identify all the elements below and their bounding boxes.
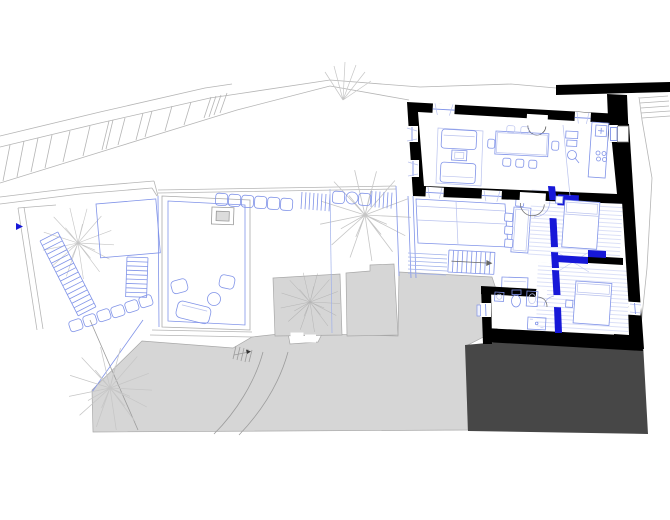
appliance-icon	[595, 125, 607, 137]
roof-structure-box	[305, 335, 316, 343]
plan-drawing	[0, 0, 670, 520]
bed	[573, 281, 612, 325]
window	[407, 160, 419, 177]
sofa	[441, 129, 477, 150]
courtyard-stair	[448, 250, 495, 274]
entry-arrow-icon	[16, 223, 23, 230]
bathroom-window	[477, 303, 491, 317]
kitchen	[563, 122, 609, 196]
roof-mid	[346, 264, 398, 336]
bed	[562, 200, 600, 249]
floor-plan-canvas	[0, 0, 670, 520]
hedge-row-lower	[68, 294, 154, 332]
terrace-outline	[162, 196, 250, 330]
garden-small-stair	[126, 257, 148, 298]
wall-niche	[609, 125, 629, 142]
window	[481, 190, 502, 202]
road-retaining-wall	[556, 82, 670, 95]
coffee-table	[451, 150, 467, 161]
planter-box	[211, 207, 234, 225]
window	[425, 187, 444, 199]
hillside-steps-right	[639, 96, 670, 345]
entry-door	[526, 114, 548, 136]
garden-long-stair	[40, 232, 96, 316]
living-room-furniture	[436, 122, 609, 196]
parking-spaces	[3, 93, 227, 181]
pergola-grid	[96, 199, 160, 258]
window	[406, 126, 418, 142]
roof-structure-box	[291, 333, 304, 342]
window	[574, 112, 591, 124]
planting-bed	[416, 199, 508, 247]
nightstand	[566, 300, 573, 307]
stove-icon	[596, 151, 607, 162]
sofa	[440, 162, 476, 184]
outdoor-dining-set	[504, 199, 531, 253]
nightstand	[556, 196, 563, 203]
dining-table	[495, 131, 549, 157]
window	[432, 103, 455, 116]
